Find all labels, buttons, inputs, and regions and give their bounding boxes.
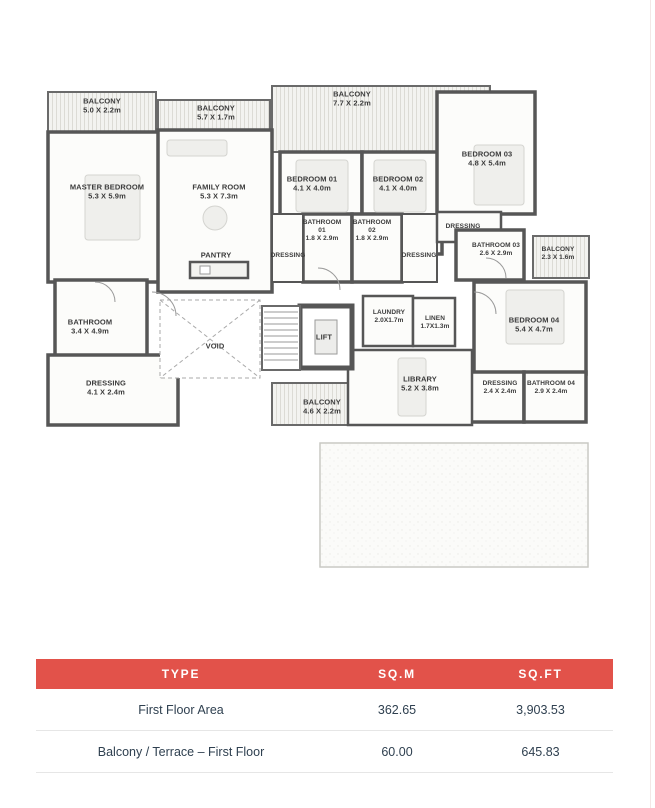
room-name: BATHROOM [303, 219, 342, 227]
room-label-balcony-4: BALCONY2.3 X 1.6m [542, 246, 575, 262]
room-label-bedroom-01: BEDROOM 014.1 X 4.0m [287, 175, 338, 194]
room-name: LIFT [316, 332, 332, 341]
terrace-area [320, 443, 588, 567]
area-table: TYPE SQ.M SQ.FT First Floor Area 362.65 … [36, 659, 613, 773]
room-dims: 4.6 X 2.2m [303, 407, 341, 416]
room-label-bathroom-02: BATHROOM021.8 X 2.9m [353, 219, 392, 243]
room-label-void: VOID [206, 341, 225, 350]
row-sqft: 3,903.53 [468, 703, 613, 717]
table-row: First Floor Area 362.65 3,903.53 [36, 689, 613, 731]
room-label-balcony-2: BALCONY5.7 X 1.7m [197, 104, 235, 123]
room-dims: 1.8 X 2.9m [353, 235, 392, 243]
room-label-dressing-02: DRESSING [402, 252, 437, 260]
room-dims: 5.3 X 7.3m [192, 192, 245, 201]
room-name: BATHROOM [68, 318, 112, 327]
column-header-sqm: SQ.M [326, 667, 468, 681]
room-dims: 2.0X1.7m [373, 317, 405, 325]
room-label-dressing-01: DRESSING [271, 252, 306, 260]
room-label-library: LIBRARY5.2 X 3.8m [401, 375, 439, 394]
room-label-pantry: PANTRY [201, 250, 232, 259]
room-dims: 4.1 X 4.0m [373, 184, 424, 193]
room-name: DRESSING [86, 379, 126, 388]
room-name: BALCONY [303, 398, 341, 407]
room-name: BEDROOM 04 [509, 316, 560, 325]
room-dims: 2.4 X 2.4m [483, 388, 518, 396]
room-name: BEDROOM 01 [287, 175, 338, 184]
room-name: DRESSING [483, 380, 518, 388]
room-name: PANTRY [201, 250, 232, 259]
room-name: DRESSING [446, 223, 481, 231]
room-label-balcony-1: BALCONY5.0 X 2.2m [83, 97, 121, 116]
room-number: 02 [353, 227, 392, 235]
room-name: BATHROOM 04 [527, 380, 575, 388]
room-dressing-01 [272, 214, 303, 282]
column-header-sqft: SQ.FT [468, 667, 613, 681]
room-dims: 7.7 X 2.2m [333, 99, 371, 108]
room-dims: 2.3 X 1.6m [542, 254, 575, 262]
room-label-bedroom-03: BEDROOM 034.8 X 5.4m [462, 150, 513, 169]
room-label-master-bedroom: MASTER BEDROOM5.3 X 5.9m [70, 183, 144, 202]
floor-plan-drawing [0, 0, 655, 600]
room-dims: 4.1 X 2.4m [86, 388, 126, 397]
room-dims: 4.8 X 5.4m [462, 159, 513, 168]
room-label-balcony-5: BALCONY4.6 X 2.2m [303, 398, 341, 417]
row-type: First Floor Area [36, 703, 326, 717]
room-label-bedroom-02: BEDROOM 024.1 X 4.0m [373, 175, 424, 194]
page-edge-divider [650, 0, 651, 808]
room-name: MASTER BEDROOM [70, 183, 144, 192]
room-name: BEDROOM 03 [462, 150, 513, 159]
area-table-header: TYPE SQ.M SQ.FT [36, 659, 613, 689]
room-name: BALCONY [83, 97, 121, 106]
room-dims: 5.4 X 4.7m [509, 325, 560, 334]
room-name: LIBRARY [401, 375, 439, 384]
room-name: VOID [206, 341, 225, 350]
room-name: FAMILY ROOM [192, 183, 245, 192]
room-label-master-dressing: DRESSING4.1 X 2.4m [86, 379, 126, 398]
room-name: BEDROOM 02 [373, 175, 424, 184]
column-header-type: TYPE [36, 667, 326, 681]
row-sqm: 60.00 [326, 745, 468, 759]
room-dims: 2.6 X 2.9m [472, 250, 520, 258]
room-dims: 1.8 X 2.9m [303, 235, 342, 243]
room-name: LINEN [421, 315, 450, 323]
room-dims: 5.2 X 3.8m [401, 384, 439, 393]
void-area [160, 300, 260, 378]
room-name: DRESSING [402, 252, 437, 260]
floor-plan: BALCONY5.0 X 2.2m BALCONY5.7 X 1.7m BALC… [0, 0, 655, 600]
room-label-laundry: LAUNDRY2.0X1.7m [373, 309, 405, 325]
room-label-family-room: FAMILY ROOM5.3 X 7.3m [192, 183, 245, 202]
room-name: BALCONY [197, 104, 235, 113]
room-label-bathroom-01: BATHROOM011.8 X 2.9m [303, 219, 342, 243]
table-row: Balcony / Terrace – First Floor 60.00 64… [36, 731, 613, 773]
row-sqm: 362.65 [326, 703, 468, 717]
room-dims: 5.7 X 1.7m [197, 113, 235, 122]
room-label-dressing-03: DRESSING [446, 223, 481, 231]
room-name: BATHROOM 03 [472, 242, 520, 250]
row-sqft: 645.83 [468, 745, 613, 759]
room-name: DRESSING [271, 252, 306, 260]
room-label-dressing-04: DRESSING2.4 X 2.4m [483, 380, 518, 396]
room-name: BALCONY [542, 246, 575, 254]
row-type: Balcony / Terrace – First Floor [36, 745, 326, 759]
room-dims: 1.7X1.3m [421, 323, 450, 331]
room-label-linen: LINEN1.7X1.3m [421, 315, 450, 331]
room-name: BALCONY [333, 90, 371, 99]
room-dims: 3.4 X 4.9m [68, 327, 112, 336]
room-dims: 2.9 X 2.4m [527, 388, 575, 396]
room-dressing-02 [402, 214, 437, 282]
room-label-lift: LIFT [316, 332, 332, 341]
room-label-master-bathroom: BATHROOM3.4 X 4.9m [68, 318, 112, 337]
room-dims: 5.3 X 5.9m [70, 192, 144, 201]
room-label-balcony-3: BALCONY7.7 X 2.2m [333, 90, 371, 109]
room-label-bathroom-03: BATHROOM 032.6 X 2.9m [472, 242, 520, 258]
staircase [262, 306, 300, 370]
room-number: 01 [303, 227, 342, 235]
room-label-bathroom-04: BATHROOM 042.9 X 2.4m [527, 380, 575, 396]
room-dims: 4.1 X 4.0m [287, 184, 338, 193]
room-name: BATHROOM [353, 219, 392, 227]
room-name: LAUNDRY [373, 309, 405, 317]
room-dims: 5.0 X 2.2m [83, 106, 121, 115]
room-label-bedroom-04: BEDROOM 045.4 X 4.7m [509, 316, 560, 335]
pantry-counter [190, 262, 248, 278]
